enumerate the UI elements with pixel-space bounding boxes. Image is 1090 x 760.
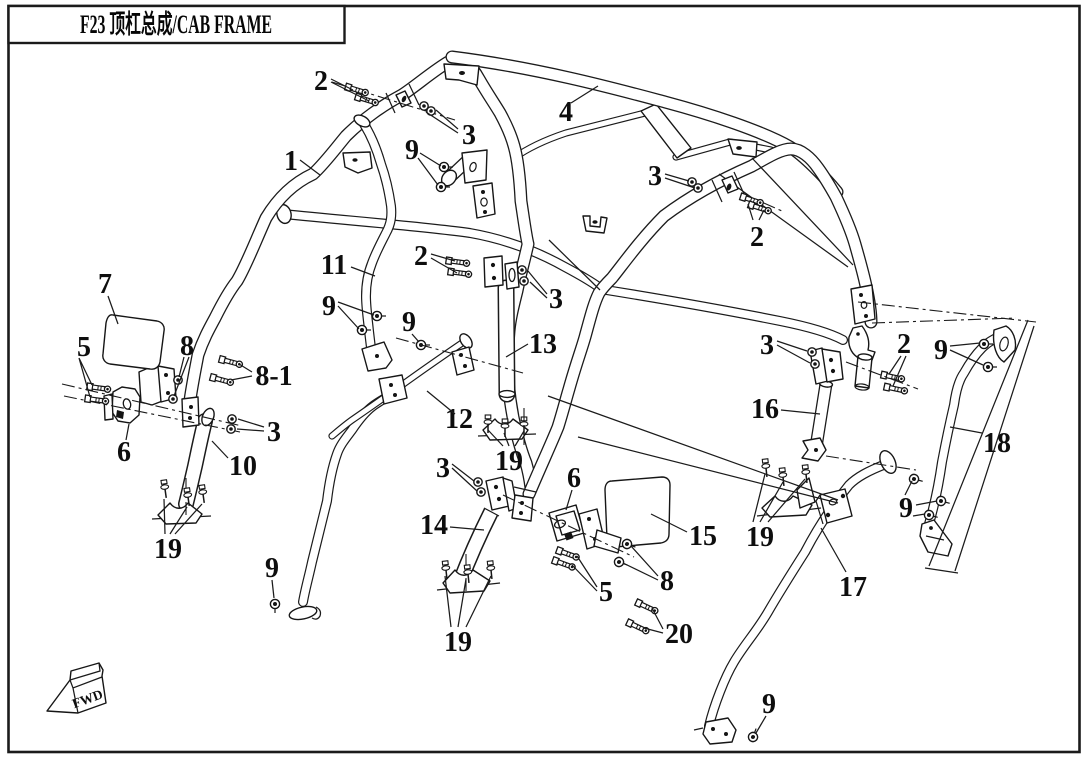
svg-text:13: 13 [529,329,557,360]
svg-text:3: 3 [760,330,774,361]
svg-text:8: 8 [180,331,194,362]
svg-text:20: 20 [665,619,693,650]
svg-text:18: 18 [983,428,1011,459]
svg-text:6: 6 [567,463,581,494]
svg-text:19: 19 [444,627,472,658]
svg-text:9: 9 [899,493,913,524]
svg-text:3: 3 [267,417,281,448]
svg-text:9: 9 [265,553,279,584]
svg-text:9: 9 [405,135,419,166]
svg-text:9: 9 [402,307,416,338]
svg-text:19: 19 [154,534,182,565]
svg-text:16: 16 [751,394,779,425]
svg-text:2: 2 [414,241,428,272]
svg-text:19: 19 [746,522,774,553]
svg-text:3: 3 [436,453,450,484]
svg-text:2: 2 [750,222,764,253]
svg-text:9: 9 [322,291,336,322]
svg-text:2: 2 [897,329,911,360]
svg-text:3: 3 [462,120,476,151]
svg-text:3: 3 [648,161,662,192]
svg-text:19: 19 [495,446,523,477]
svg-text:6: 6 [117,437,131,468]
svg-text:14: 14 [420,510,448,541]
svg-text:9: 9 [762,689,776,720]
svg-text:11: 11 [321,250,347,281]
svg-text:8: 8 [660,566,674,597]
svg-text:F23 顶杠总成/CAB FRAME: F23 顶杠总成/CAB FRAME [80,10,272,39]
svg-text:10: 10 [229,451,257,482]
svg-text:9: 9 [934,335,948,366]
svg-text:7: 7 [98,269,112,300]
svg-text:17: 17 [839,572,867,603]
svg-text:8-1: 8-1 [255,361,292,392]
svg-text:1: 1 [284,146,298,177]
svg-text:15: 15 [689,521,717,552]
svg-text:4: 4 [559,97,573,128]
svg-text:5: 5 [599,577,613,608]
svg-text:2: 2 [314,66,328,97]
svg-text:3: 3 [549,284,563,315]
